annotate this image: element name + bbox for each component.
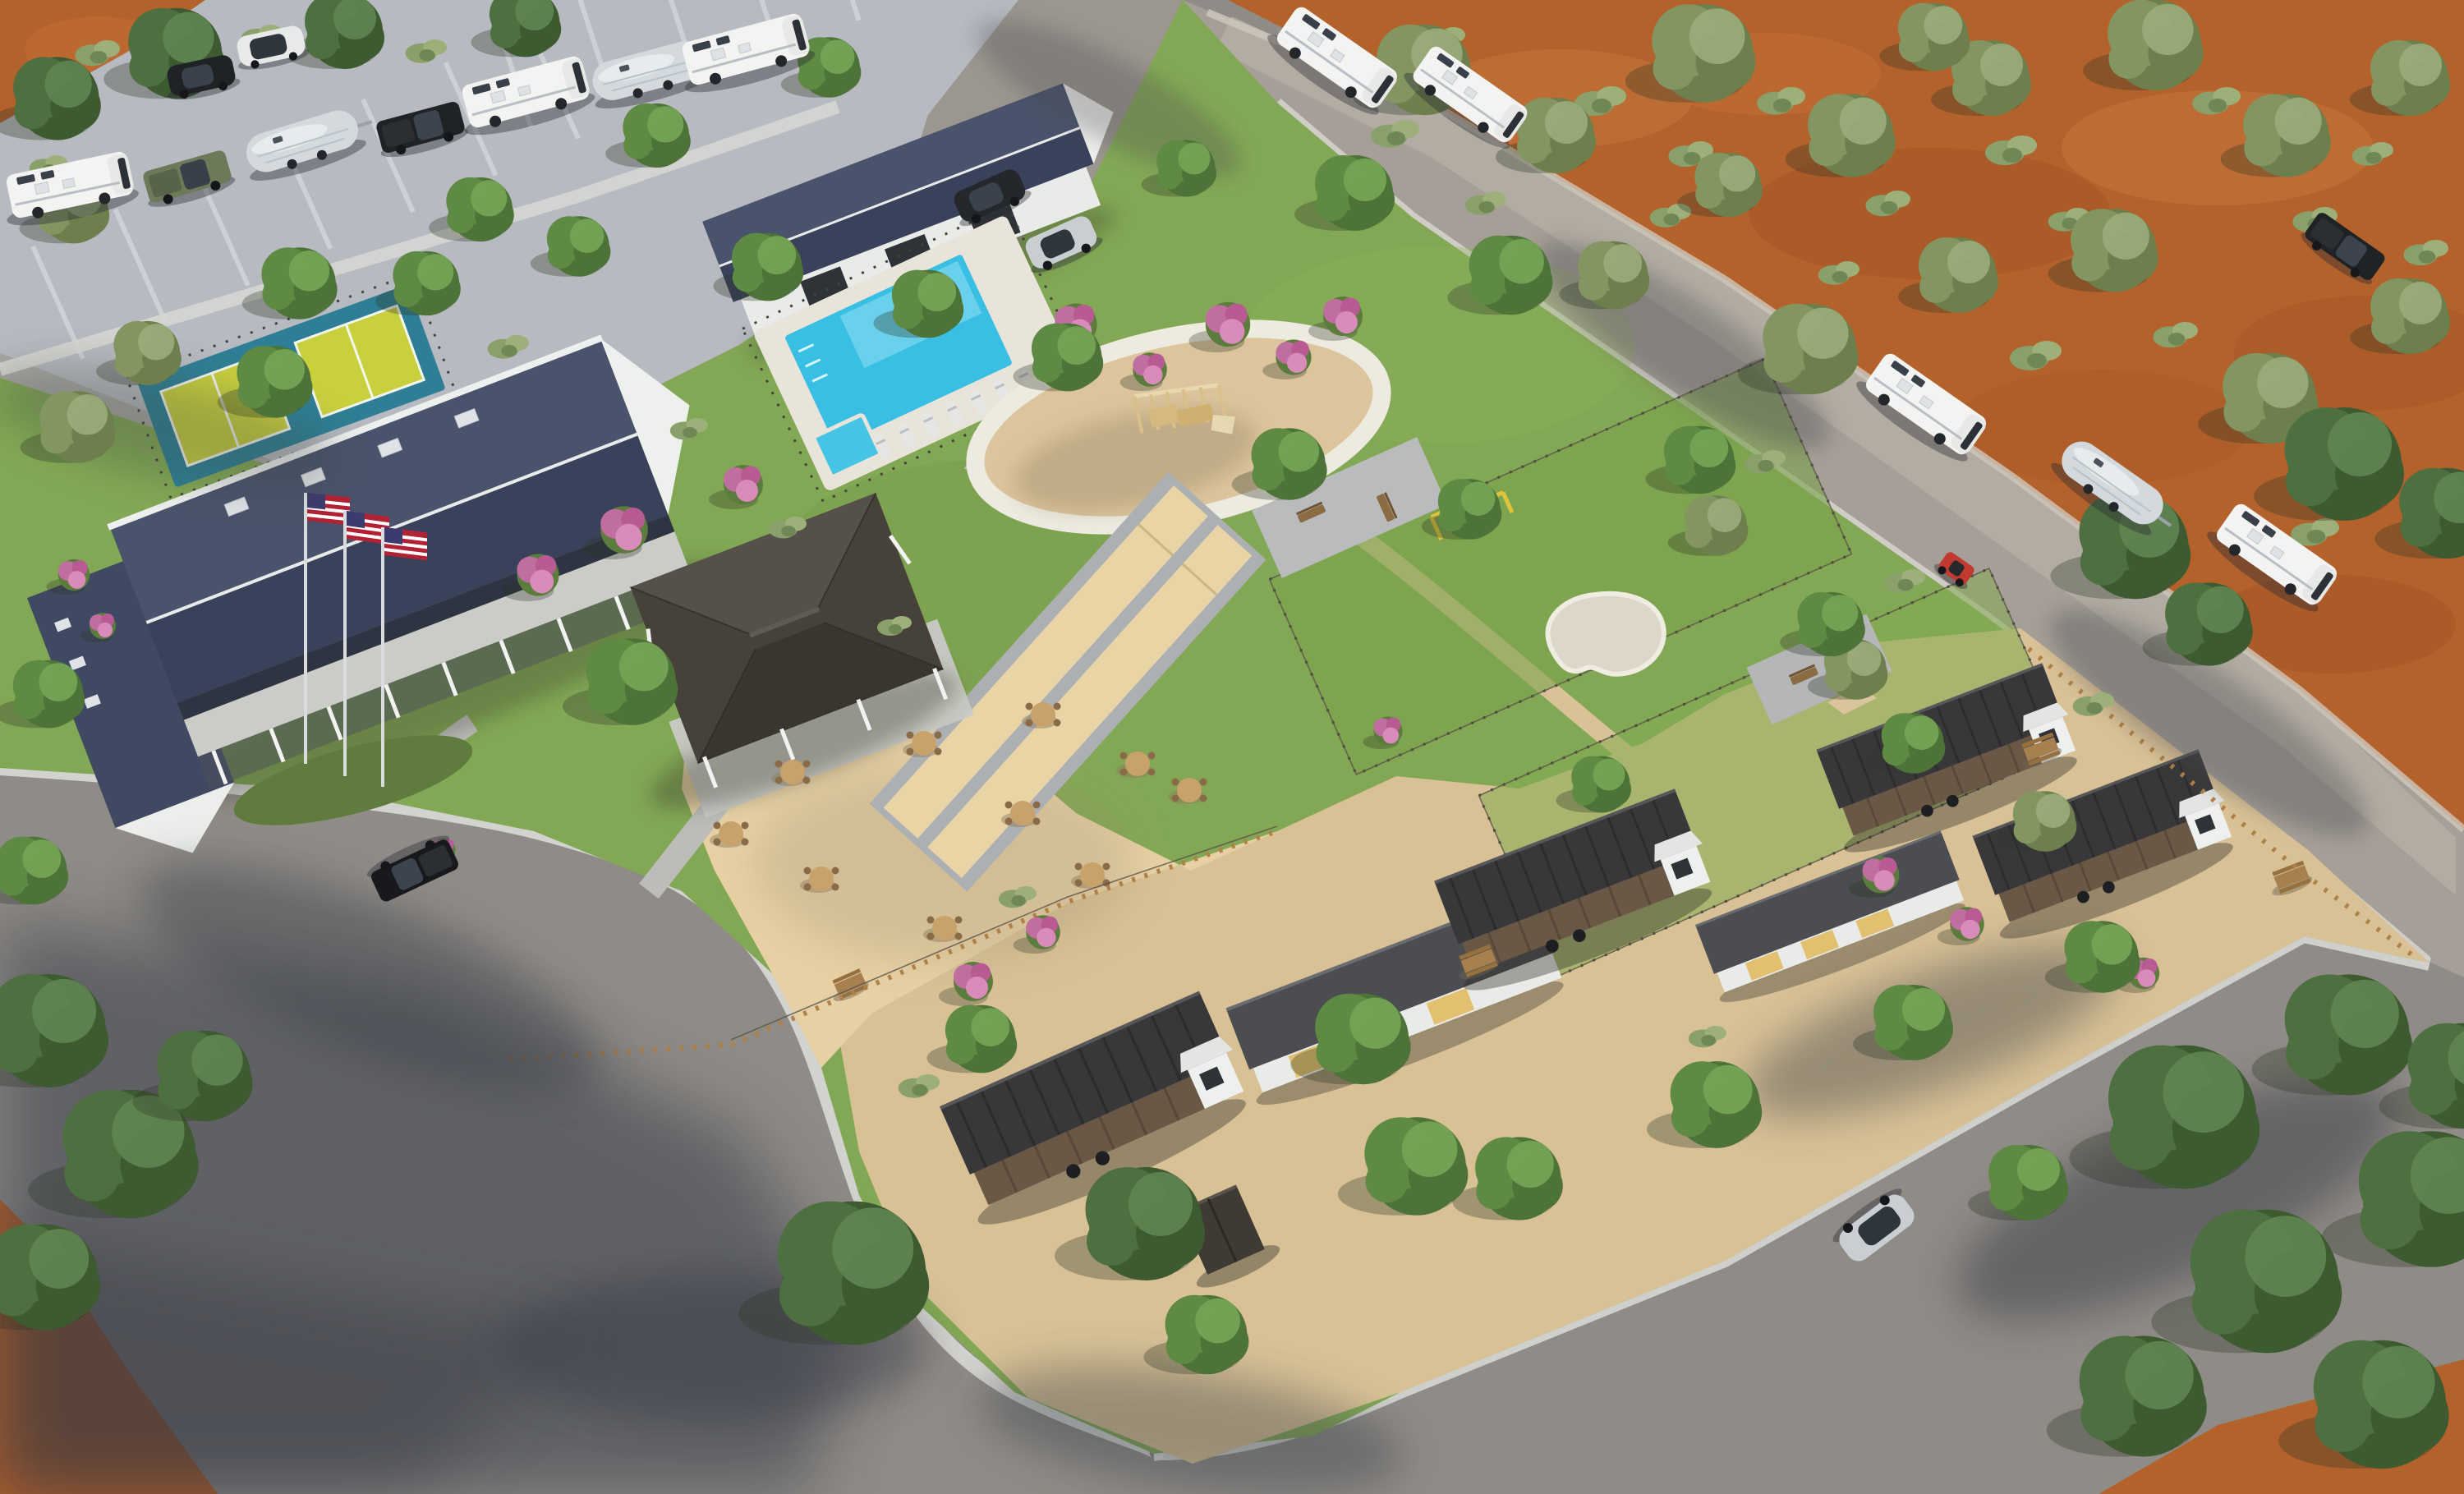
campground-scene: Aerial 3D rendering of an RV resort and … (0, 0, 2464, 1494)
aerial-rendering: Aerial 3D rendering of an RV resort and … (0, 0, 2464, 1494)
